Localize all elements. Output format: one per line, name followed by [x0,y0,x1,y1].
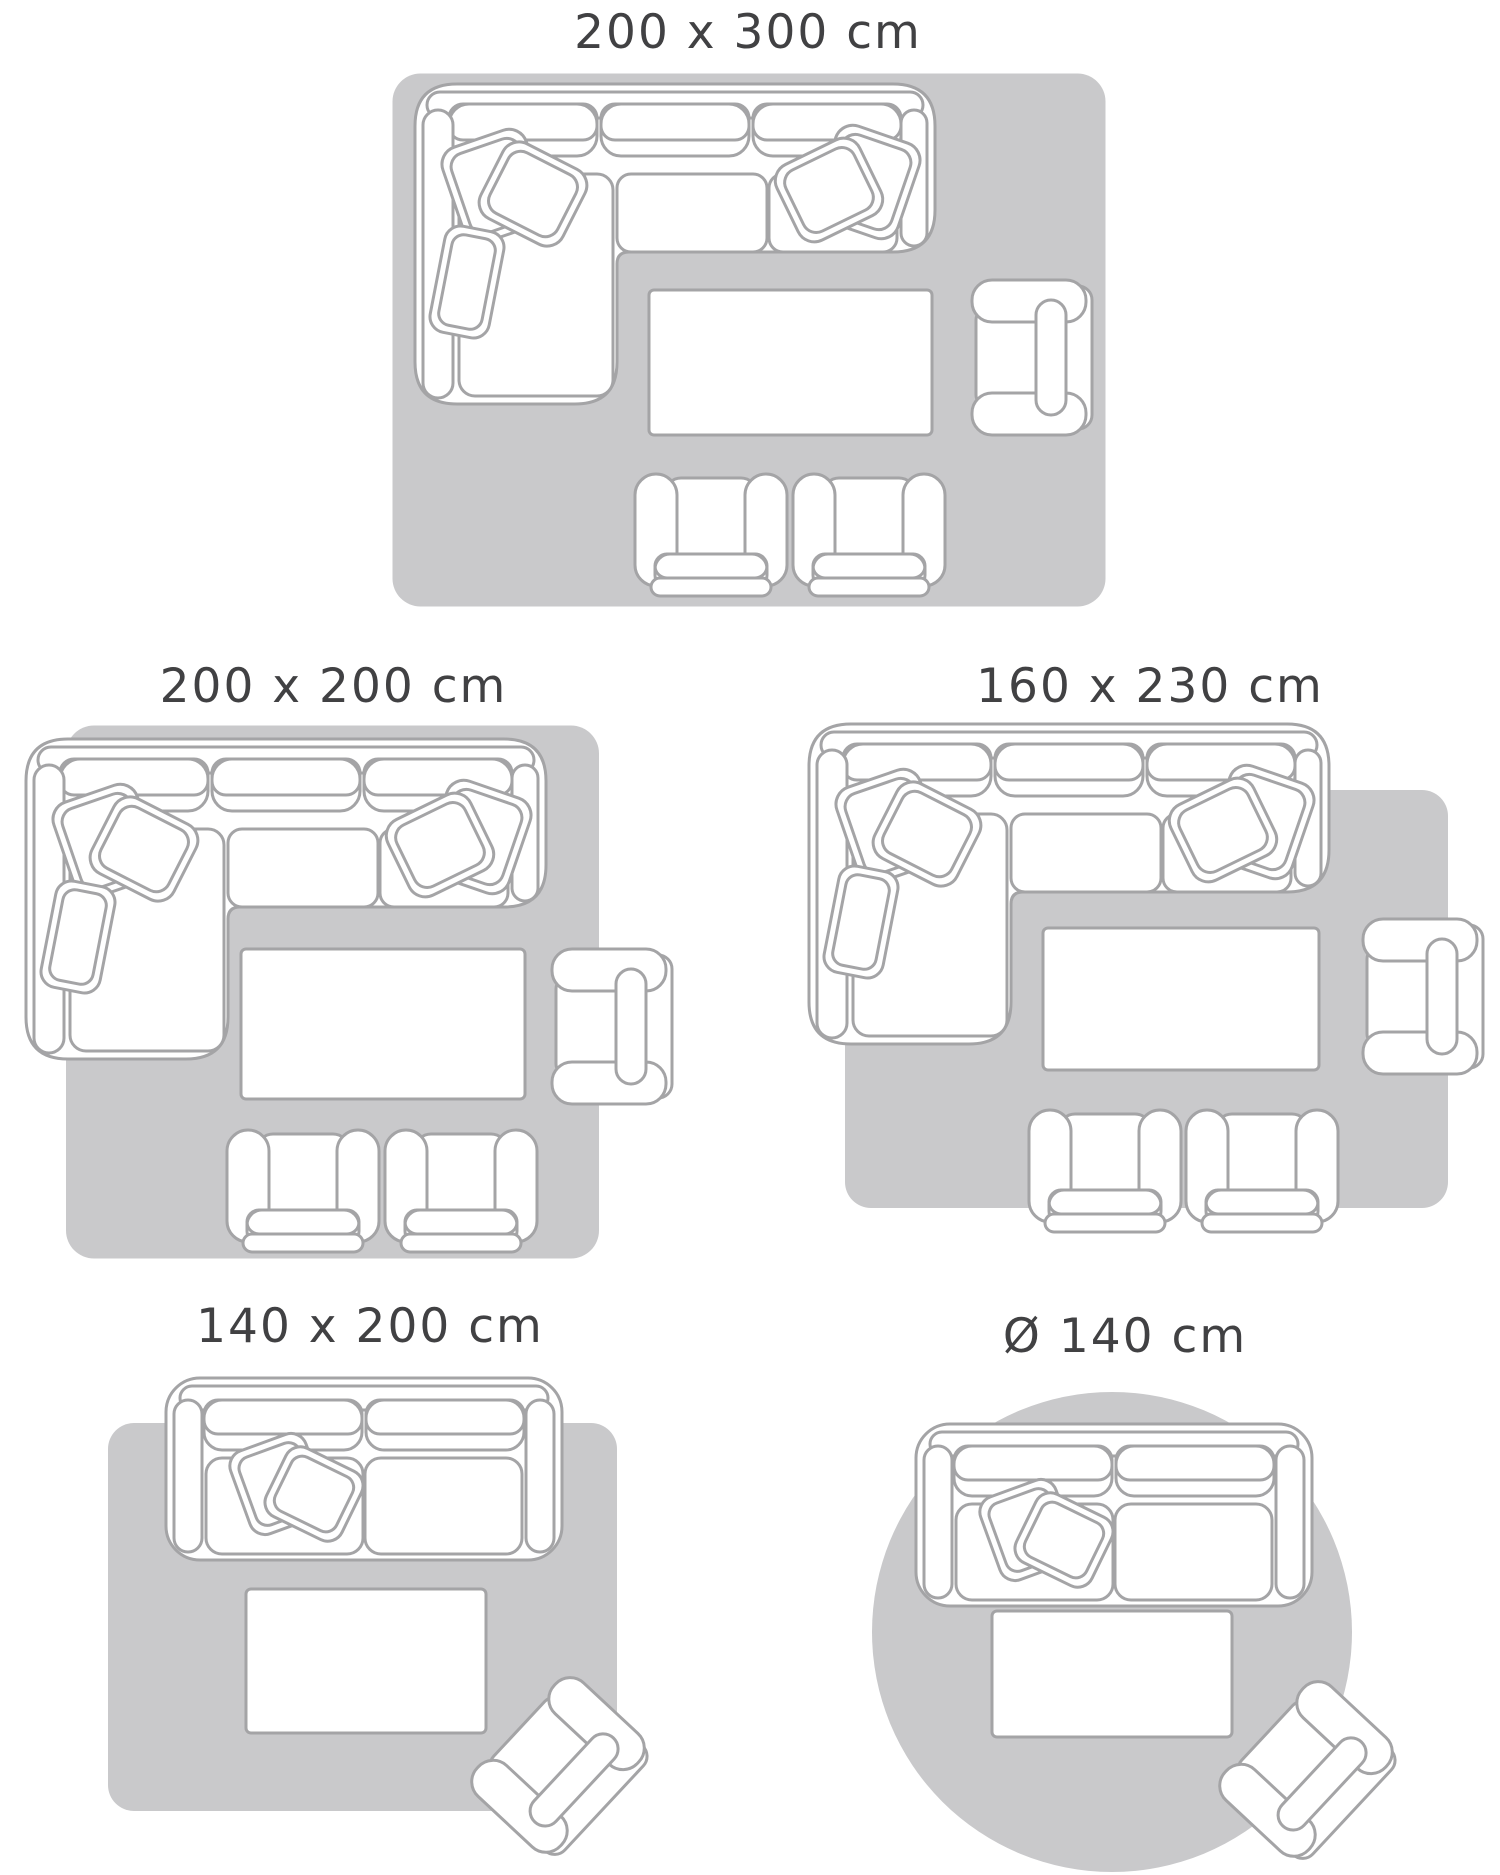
footstool-chair [1029,1110,1181,1232]
footstool-chair [635,474,787,596]
armchair [1363,919,1483,1074]
size-option-200x200: 200 x 200 cm [0,655,700,1275]
two-seat-sofa [166,1378,562,1560]
room-layout-round-140 [868,1392,1448,1875]
rug-size-guide: 200 x 300 cm 200 x 200 cm 160 x 230 cm [0,0,1500,1875]
room-layout-200x300 [391,72,1107,608]
size-option-160x230: 160 x 230 cm [760,655,1500,1275]
coffee-table [649,290,932,435]
room-layout-160x230 [809,724,1499,1224]
two-seat-sofa [916,1424,1312,1606]
size-option-200x300: 200 x 300 cm [330,0,1170,615]
footstool-chair [793,474,945,596]
room-layout-140x200 [108,1376,668,1868]
footstool-chair [227,1130,379,1252]
armchair [552,949,672,1104]
rug-size-label: 200 x 300 cm [390,6,1106,60]
rug-size-label: 160 x 230 cm [830,660,1470,714]
rug-size-label: 140 x 200 cm [40,1300,700,1354]
coffee-table [992,1611,1232,1737]
rug-size-label: 200 x 200 cm [66,660,601,714]
coffee-table [246,1589,486,1733]
footstool-chair [1186,1110,1338,1232]
coffee-table [1043,928,1319,1070]
armchair [972,280,1092,435]
size-option-140x200: 140 x 200 cm [40,1300,700,1875]
footstool-chair [385,1130,537,1252]
coffee-table [241,949,525,1099]
rug-size-label: Ø 140 cm [820,1310,1430,1364]
size-option-round-140: Ø 140 cm [820,1300,1480,1875]
room-layout-200x200 [26,724,677,1260]
